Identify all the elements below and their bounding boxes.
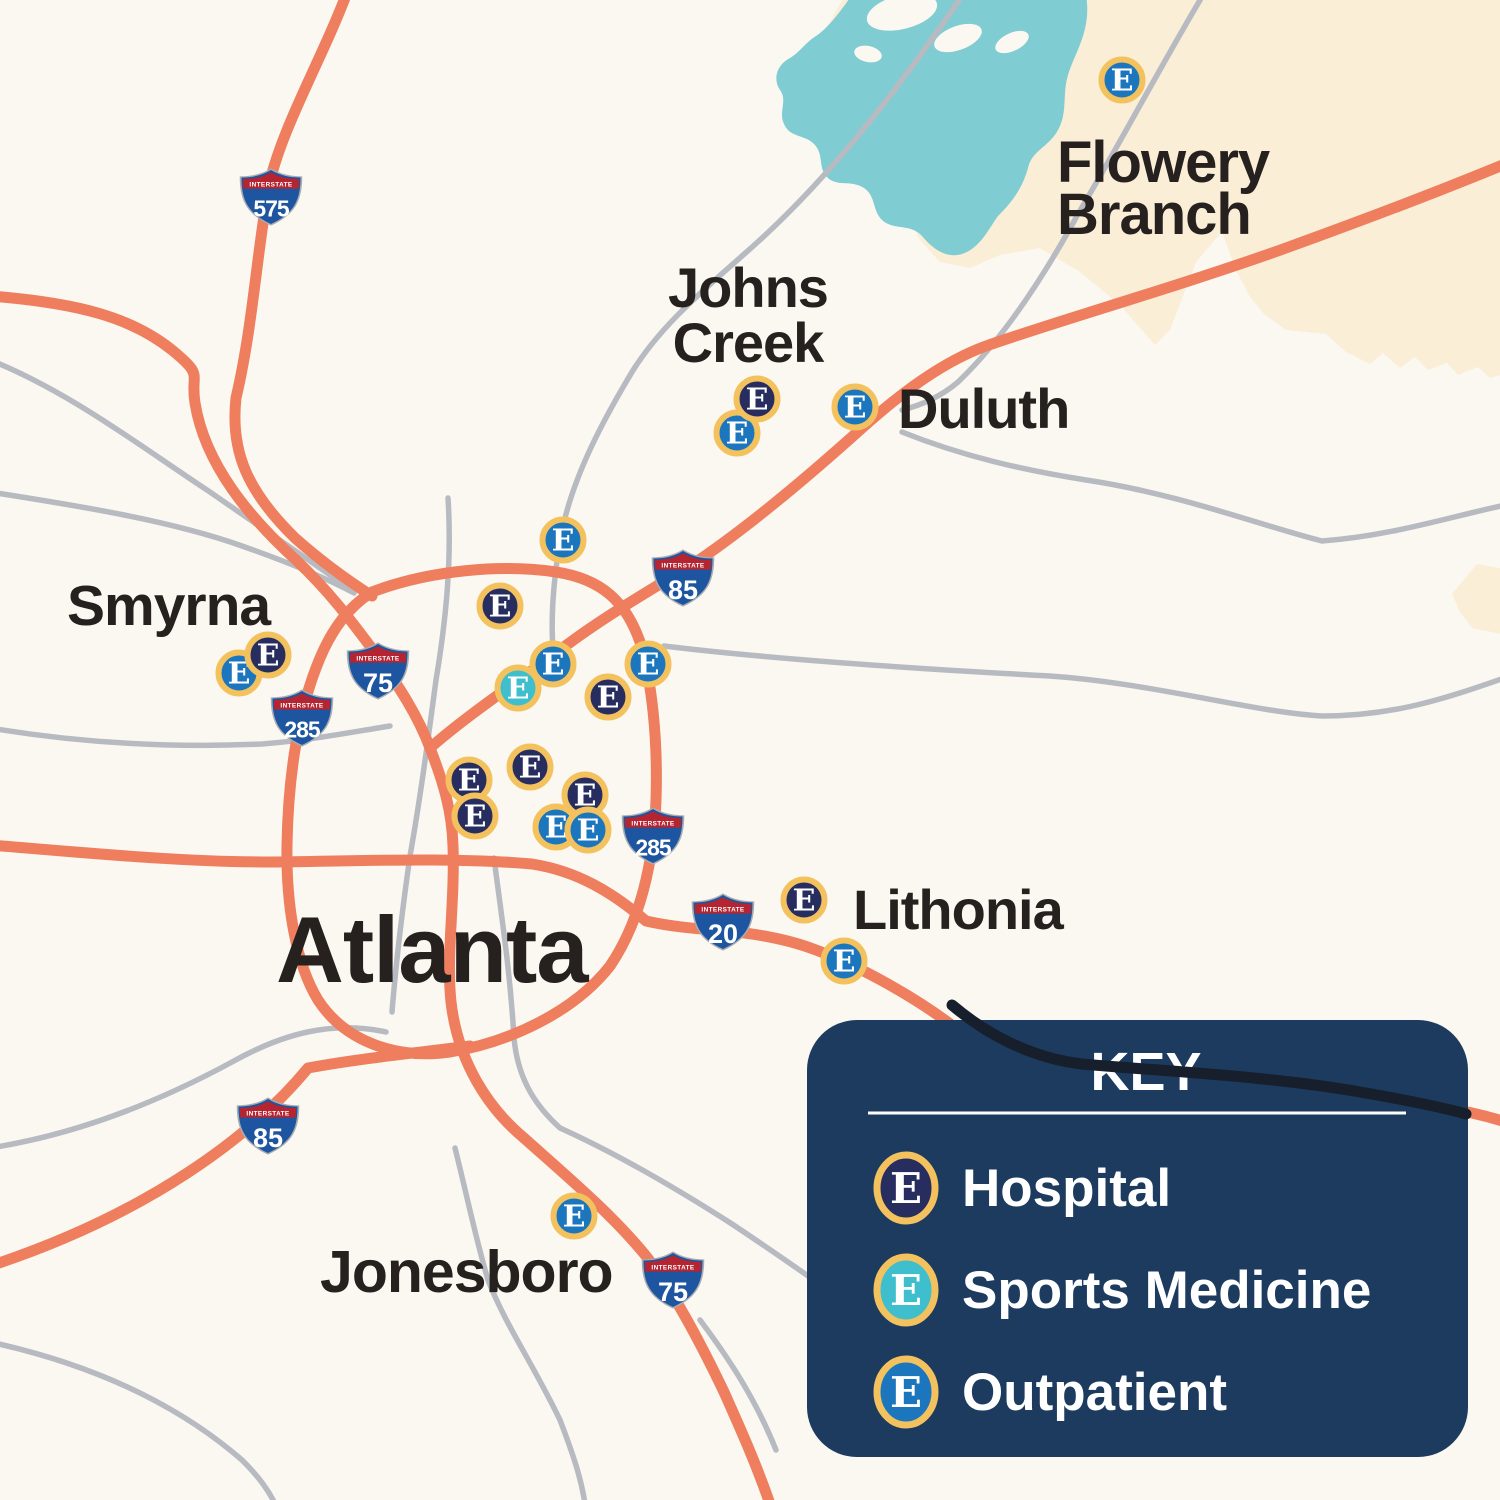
marker-letter: E [746,383,769,418]
marker-letter: E [577,814,600,849]
shield-interstate-text: INTERSTATE [651,1264,695,1271]
marker-outpatient[interactable]: E [1102,60,1143,101]
marker-sports[interactable]: E [498,668,539,709]
marker-letter: E [1111,64,1134,99]
marker-hospital[interactable]: E [784,880,825,921]
marker-outpatient[interactable]: E [554,1196,595,1237]
city-label-atlanta: Atlanta [276,897,589,1002]
city-label-johns-creek: JohnsCreek [668,256,828,374]
marker-letter: E [545,811,568,846]
marker-letter: E [519,751,542,786]
city-label-lithonia: Lithonia [853,878,1065,941]
marker-hospital[interactable]: E [737,379,778,420]
key-entry-hospital: EHospital [877,1155,1171,1221]
key-entry-label: Sports Medicine [962,1261,1371,1320]
legend-marker-letter: E [890,1368,922,1417]
city-label-duluth: Duluth [898,377,1069,440]
marker-outpatient[interactable]: E [824,941,865,982]
shield-interstate-text: INTERSTATE [246,1110,290,1117]
map-stage: KEYEHospitalESports MedicineEOutpatient … [0,0,1500,1500]
city-label-text: Atlanta [276,897,589,1002]
marker-letter: E [597,681,620,716]
city-label-text: Branch [1057,182,1251,247]
marker-hospital[interactable]: E [455,796,496,837]
shield-number: 575 [253,196,290,222]
marker-letter: E [637,648,660,683]
marker-letter: E [563,1200,586,1235]
legend-marker-letter: E [890,1266,922,1315]
city-label-text: Duluth [898,377,1069,440]
marker-letter: E [833,945,856,980]
marker-hospital[interactable]: E [510,747,551,788]
marker-outpatient[interactable]: E [835,387,876,428]
city-label-smyrna: Smyrna [67,574,272,638]
marker-hospital[interactable]: E [248,635,289,676]
shield-interstate-text: INTERSTATE [280,702,324,709]
city-label-text: Jonesboro [320,1239,613,1305]
shield-number: 75 [658,1277,688,1307]
marker-hospital[interactable]: E [588,677,629,718]
shield-interstate-text: INTERSTATE [661,562,705,569]
city-label-text: Creek [673,311,826,374]
city-label-jonesboro: Jonesboro [320,1239,613,1305]
marker-letter: E [542,648,565,683]
city-label-text: Smyrna [67,574,272,638]
marker-letter: E [844,391,867,426]
marker-letter: E [507,672,530,707]
key-entry-label: Hospital [962,1159,1171,1218]
shield-number: 285 [284,717,321,743]
marker-letter: E [257,639,280,674]
marker-letter: E [726,417,749,452]
atlanta-locations-map: KEYEHospitalESports MedicineEOutpatient … [0,0,1500,1500]
marker-hospital[interactable]: E [480,586,521,627]
marker-outpatient[interactable]: E [543,520,584,561]
shield-interstate-text: INTERSTATE [356,655,400,662]
city-label-flowery-branch: FloweryBranch [1057,130,1270,247]
shield-interstate-text: INTERSTATE [249,181,293,188]
key-entry-label: Outpatient [962,1363,1227,1422]
shield-interstate-text: INTERSTATE [701,906,745,913]
city-label-text: Lithonia [853,878,1065,941]
shield-number: 85 [668,575,698,605]
shield-number: 20 [708,919,738,949]
shield-number: 85 [253,1123,283,1153]
shield-number: 75 [363,668,393,698]
key-panel-layer: KEYEHospitalESports MedicineEOutpatient [807,1020,1468,1457]
legend-marker-letter: E [890,1164,922,1213]
city-label-text: Johns [668,256,828,319]
marker-outpatient[interactable]: E [628,644,669,685]
marker-letter: E [489,590,512,625]
marker-letter: E [552,524,575,559]
shield-number: 285 [635,835,672,861]
marker-outpatient[interactable]: E [568,810,609,851]
shield-interstate-text: INTERSTATE [631,820,675,827]
marker-letter: E [793,884,816,919]
marker-letter: E [464,800,487,835]
key-entry-outpatient: EOutpatient [877,1359,1227,1425]
